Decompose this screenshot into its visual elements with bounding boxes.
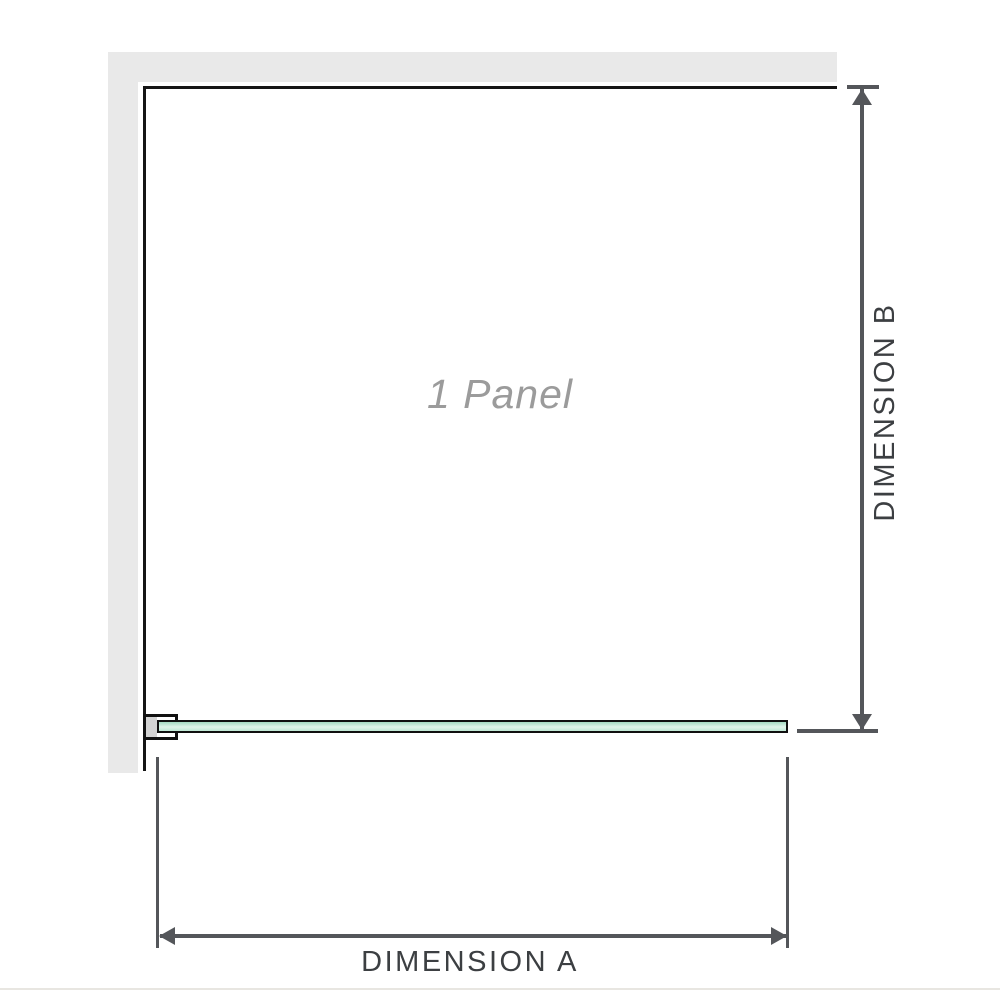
- wall-bracket-fill: [146, 717, 157, 737]
- panel-outline-top-edge: [143, 86, 837, 89]
- wall-top: [108, 52, 837, 82]
- shower-screen-dimension-diagram: 1 Panel DIMENSION B DIMENSION A: [0, 0, 1000, 1000]
- panel-count-label: 1 Panel: [300, 371, 700, 418]
- glass-panel-bar: [157, 720, 788, 733]
- dimension-a-label: DIMENSION A: [270, 946, 670, 979]
- dimension-a-arrow-right-icon: [771, 927, 787, 945]
- dimension-a-extension-line-left: [156, 757, 159, 948]
- dimension-b-line: [860, 89, 864, 730]
- dimension-b-label: DIMENSION B: [869, 232, 903, 592]
- panel-outline-left-edge: [143, 86, 146, 771]
- dimension-a-extension-line-right: [786, 757, 789, 948]
- dimension-b-arrow-down-icon: [852, 714, 872, 730]
- bottom-divider-line: [0, 988, 1000, 990]
- dimension-b-arrow-up-icon: [852, 89, 872, 105]
- dimension-a-arrow-left-icon: [159, 927, 175, 945]
- dimension-a-line: [160, 934, 786, 938]
- wall-left: [108, 52, 138, 773]
